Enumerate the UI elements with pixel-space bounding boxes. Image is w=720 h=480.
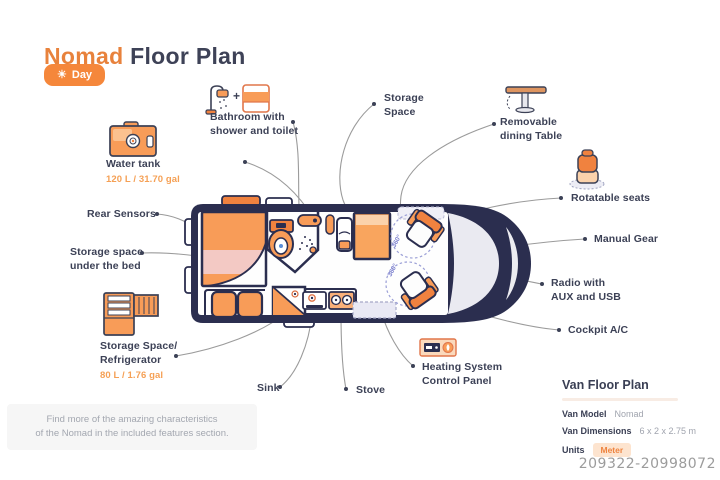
- callout-radio: Radio with AUX and USB: [551, 277, 621, 305]
- page-title-rest: Floor Plan: [123, 43, 245, 69]
- plus-sign: +: [233, 89, 240, 103]
- callout-bathroom: Bathroom with shower and toilet: [210, 111, 298, 139]
- callout-manual-gear: Manual Gear: [594, 233, 658, 247]
- refrigerator-icon: [104, 293, 158, 335]
- callout-under-bed: Storage space under the bed: [70, 246, 143, 274]
- bed: [202, 212, 266, 286]
- callout-storage-space: Storage Space: [384, 92, 424, 120]
- spec-row-units: Units Meter: [562, 443, 712, 457]
- callout-rotatable-seats: Rotatable seats: [571, 192, 650, 206]
- watermark: 209322-20998072: [579, 456, 716, 472]
- heater-door-area: [353, 302, 396, 318]
- callout-stove: Stove: [356, 384, 385, 398]
- spec-divider: [562, 398, 678, 401]
- water-tank-icon: [110, 122, 156, 156]
- heating-panel-icon: [420, 339, 456, 356]
- sun-icon: ☀: [57, 70, 67, 81]
- shower-icon: [206, 86, 228, 114]
- callout-dining-table: Removable dining Table: [500, 116, 562, 144]
- callout-water-tank: Water tank 120 L / 31.70 gal: [106, 158, 180, 186]
- toilet-icon: [243, 85, 269, 112]
- footnote-text: Find more of the amazing characteristics…: [35, 413, 228, 442]
- storage-box: [354, 213, 390, 259]
- stove-plan: [329, 292, 354, 309]
- bed-cushions: [205, 290, 265, 317]
- day-mode-toggle[interactable]: ☀ Day: [44, 64, 105, 86]
- refrigerator-capacity: 80 L / 1.76 gal: [100, 370, 177, 383]
- callout-cockpit-ac: Cockpit A/C: [568, 324, 628, 338]
- footnote-box: Find more of the amazing characteristics…: [7, 404, 257, 450]
- kitchen-counter: [273, 287, 356, 315]
- callout-rear-sensors: Rear Sensors: [87, 208, 156, 222]
- spec-row-model: Van Model Nomad: [562, 409, 712, 419]
- connector-stove: [341, 313, 346, 389]
- sink-plan: [303, 292, 326, 309]
- callout-heating: Heating System Control Panel: [422, 361, 502, 389]
- toilet: [269, 220, 293, 258]
- units-badge[interactable]: Meter: [593, 443, 632, 457]
- spec-panel: Van Floor Plan Van Model Nomad Van Dimen…: [562, 378, 712, 464]
- water-tank-capacity: 120 L / 31.70 gal: [106, 174, 180, 187]
- day-mode-label: Day: [72, 69, 92, 81]
- dining-table-icon: [506, 87, 546, 113]
- spec-panel-title: Van Floor Plan: [562, 378, 712, 392]
- callout-sink: Sink: [257, 382, 280, 396]
- callout-refrigerator: Storage Space/ Refrigerator 80 L / 1.76 …: [100, 340, 177, 382]
- spec-row-dimensions: Van Dimensions 6 x 2 x 2.75 m: [562, 426, 712, 436]
- rotatable-seat-icon: [570, 150, 604, 189]
